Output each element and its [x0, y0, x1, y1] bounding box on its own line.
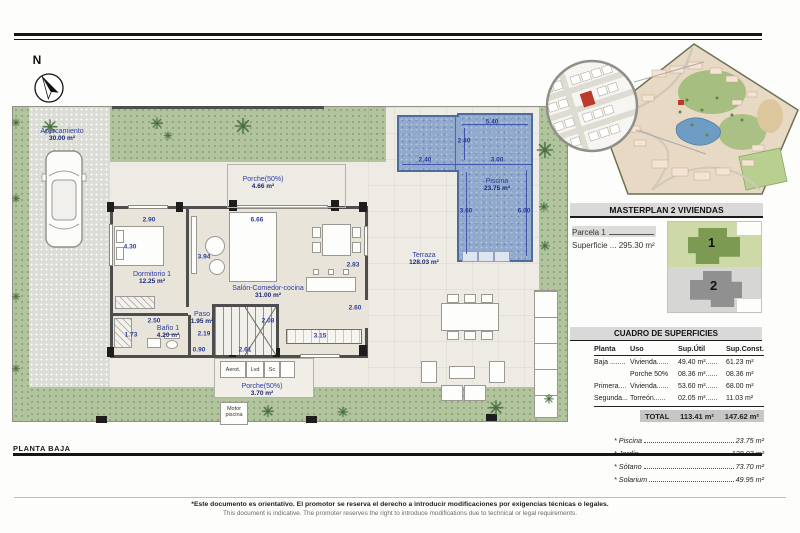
outdoor-armchair [489, 361, 505, 383]
room-label-aparcamiento: Aparcamiento 30.00 m² [40, 128, 83, 142]
dimension-label: 2.50 [148, 318, 161, 325]
chair [312, 227, 321, 238]
table-cell: 61.23 m² [726, 357, 764, 369]
room-label-terraza: Terraza 128.03 m² [409, 252, 439, 266]
terrace-door-opening [364, 300, 369, 328]
fence-post [306, 416, 317, 423]
column [107, 202, 114, 212]
closet-label: Lvd [251, 367, 260, 373]
list-item: * Piscina 23.75 m² [614, 432, 764, 445]
pool-steps [494, 251, 510, 262]
dimension-label: 5.40 [486, 119, 499, 126]
kitchen-counter [306, 277, 356, 292]
room-area: 4.20 m² [157, 332, 179, 339]
dimension-label: 3.00 [491, 157, 504, 164]
lot-notch [737, 222, 761, 235]
palm-tree-icon: ✳ [261, 405, 274, 421]
parcel-detail-callout [542, 54, 712, 162]
table-cell: 49.40 m²...... [678, 357, 726, 369]
parcela-row: Parcela 1 [572, 226, 656, 237]
palm-tree-icon: ✳ [540, 240, 551, 253]
two-dwellings-diagram: 1 2 [667, 221, 762, 313]
column [359, 345, 367, 356]
outdoor-sofa [441, 385, 463, 401]
room-label-piscina: Piscina 23.75 m² [484, 178, 510, 192]
room-name: Aparcamiento [40, 128, 83, 135]
room-area: 30.00 m² [40, 135, 83, 142]
total-sup-const: 147.62 m² [725, 412, 759, 421]
chair [464, 294, 476, 303]
window [109, 224, 114, 266]
parcela-label: Parcela 1 [572, 228, 606, 237]
window [364, 226, 369, 256]
total-sup-util: 113.41 m² [680, 412, 714, 421]
stool [313, 269, 319, 275]
table-cell: 02.05 m²...... [678, 393, 726, 405]
wardrobe [115, 296, 155, 309]
table-cell: Primera.... [594, 381, 630, 393]
surfaces-total-row: TOTAL 113.41 m² 147.62 m² [640, 410, 764, 422]
closet-sc: Sc [264, 361, 280, 378]
col-header-uso: Uso [630, 344, 678, 354]
table-cell: Baja ........ [594, 357, 630, 369]
chair [464, 331, 476, 340]
dimension-label: 3.94 [198, 254, 211, 261]
closet-label: Sc [269, 367, 275, 373]
lot-notch [737, 299, 761, 312]
col-header-sup-const: Sup.Const. [726, 344, 764, 354]
col-header-planta: Planta [594, 344, 630, 354]
palm-tree-icon: ✳ [234, 116, 252, 138]
parcela-underline [609, 234, 654, 235]
wall [186, 209, 189, 307]
entrance-gate [112, 106, 324, 109]
motor-label-line2: piscina [221, 412, 247, 418]
top-rule-thick [14, 33, 762, 36]
extra-label: * Solarium [614, 475, 647, 484]
palm-tree-icon: ✳ [11, 119, 20, 130]
chair [312, 242, 321, 253]
palm-tree-icon: ✳ [150, 117, 163, 133]
room-label-paso: Paso 1.95 m² [191, 311, 213, 325]
masterplan-panel-title: MASTERPLAN 2 VIVIENDAS [570, 203, 763, 218]
list-item: * Jardín 128.03 m² [614, 445, 764, 458]
table-cell: Torreón...... [630, 393, 678, 405]
outdoor-armchair [421, 361, 437, 383]
dimension-label: 2.19 [198, 331, 211, 338]
chair [352, 242, 361, 253]
stool [343, 269, 349, 275]
dimension-line [402, 164, 532, 165]
room-area: 4.66 m² [243, 183, 284, 190]
extra-label: * Piscina [614, 436, 642, 445]
palm-tree-icon: ✳ [11, 365, 20, 376]
fence-post [96, 416, 107, 423]
dimension-label: 2.60 [349, 305, 362, 312]
closet-empty [280, 361, 295, 378]
list-item: * Solarium 49.95 m² [614, 471, 764, 484]
room-label-dormitorio1: Dormitorio 1 12.25 m² [133, 271, 171, 285]
plan-title-rule [13, 453, 762, 456]
room-name: Dormitorio 1 [133, 271, 171, 278]
extras-list: * Piscina 23.75 m² * Jardín 128.03 m² * … [614, 432, 764, 484]
room-name: Terraza [409, 252, 439, 259]
dimension-label: 2.40 [458, 138, 471, 145]
palm-tree-icon: ✳ [11, 195, 20, 206]
disclaimer-es: *Este documento es orientativo. El promo… [0, 501, 800, 508]
disclaimer-en: This document is indicative. The promote… [0, 510, 800, 517]
dimension-label: 4.30 [124, 244, 137, 251]
palm-tree-icon: ✳ [337, 405, 349, 419]
dimension-label: 6.66 [251, 217, 264, 224]
col-header-sup-util: Sup.Útil [678, 344, 726, 354]
wall [112, 313, 188, 316]
dimension-label: 2.40 [419, 157, 432, 164]
plan-title: PLANTA BAJA [13, 444, 71, 453]
table-cell: 08.36 m² [726, 369, 764, 381]
table-cell: 08.36 m²...... [678, 369, 726, 381]
chair [481, 331, 493, 340]
dimension-label: 2.83 [347, 262, 360, 269]
dimension-label: 3.15 [314, 333, 327, 340]
coffee-table [449, 366, 475, 379]
footer-divider [14, 497, 786, 498]
sink [147, 338, 161, 348]
room-label-salon: Salón-Comedor-cocina 31.00 m² [232, 285, 304, 299]
car-top-view [41, 146, 87, 252]
room-area: 1.95 m² [191, 318, 213, 325]
stool [328, 269, 334, 275]
room-area: 3.70 m² [242, 390, 283, 397]
table-cell: Vivienda...... [630, 357, 678, 369]
toilet [166, 340, 178, 349]
palm-tree-icon: ✳ [488, 399, 505, 419]
extra-value: 73.70 m² [736, 462, 764, 471]
table-cell [594, 369, 630, 381]
room-name: Porche(50%) [243, 176, 284, 183]
outdoor-sofa [464, 385, 486, 401]
palm-tree-icon: ✳ [544, 393, 555, 406]
column [107, 347, 114, 357]
pool-steps [462, 251, 478, 262]
unit2-lot: 2 [668, 267, 761, 312]
table-cell: 68.00 m² [726, 381, 764, 393]
palm-tree-icon: ✳ [539, 201, 550, 214]
room-label-porche-top: Porche(50%) 4.66 m² [243, 176, 284, 190]
palm-tree-icon: ✳ [11, 293, 20, 304]
total-label: TOTAL [645, 412, 669, 421]
outdoor-dining-table [441, 303, 499, 331]
closet-label: Aerot. [226, 367, 241, 373]
window [128, 205, 168, 210]
column [359, 202, 367, 212]
pillow [116, 230, 124, 243]
room-area: 31.00 m² [232, 292, 304, 299]
extra-value: 23.75 m² [736, 436, 764, 445]
room-name: Porche(50%) [242, 383, 283, 390]
unit2-number: 2 [710, 278, 717, 293]
closet-lvd: Lvd [246, 361, 264, 378]
room-name: Salón-Comedor-cocina [232, 285, 304, 292]
room-area: 12.25 m² [133, 278, 171, 285]
dotted-leader [649, 481, 733, 482]
dimension-label: 2.08 [262, 318, 275, 325]
dimension-label: 6.00 [518, 208, 531, 215]
round-table [209, 259, 225, 275]
palm-tree-icon: ✳ [163, 132, 172, 143]
room-label-bano1: Baño 1 4.20 m² [157, 325, 179, 339]
dimension-label: 1.73 [125, 332, 138, 339]
dimension-label: 2.61 [239, 347, 252, 354]
closet-aerot: Aerot. [220, 361, 246, 378]
tv-bench [191, 216, 197, 274]
dimension-label: 0.90 [193, 347, 206, 354]
table-cell: Vivienda...... [630, 381, 678, 393]
list-item: * Sótano 73.70 m² [614, 458, 764, 471]
room-area: 128.03 m² [409, 259, 439, 266]
dining-table [322, 224, 351, 256]
unit1-lot: 1 [668, 222, 761, 267]
room-area: 23.75 m² [484, 185, 510, 192]
table-cell: Porche 50% [630, 369, 678, 381]
north-compass: N [24, 50, 70, 114]
brochure-page: N [0, 0, 800, 533]
dimension-label: 3.60 [460, 208, 473, 215]
surfaces-panel-title: CUADRO DE SUPERFICIES [570, 327, 762, 341]
surfaces-table-header: Planta Uso Sup.Útil Sup.Const. [594, 344, 764, 356]
table-cell: 53.60 m²...... [678, 381, 726, 393]
pool-motor-box: Motor piscina [220, 402, 248, 425]
unit1-number: 1 [708, 235, 715, 250]
chair [447, 331, 459, 340]
superficie-label: Superficie ... 295.30 m² [572, 241, 655, 250]
dimension-label: 2.90 [143, 217, 156, 224]
room-name: Piscina [484, 178, 510, 185]
compass-n-label: N [33, 53, 42, 67]
dotted-leader [644, 468, 734, 469]
dotted-leader [644, 442, 734, 443]
surfaces-table: Planta Uso Sup.Útil Sup.Const. Baja ....… [594, 344, 764, 407]
extra-value: 49.95 m² [736, 475, 764, 484]
column [176, 202, 183, 212]
room-name: Baño 1 [157, 325, 179, 332]
extra-label: * Sótano [614, 462, 642, 471]
chair [481, 294, 493, 303]
chair [447, 294, 459, 303]
table-cell: 11.03 m² [726, 393, 764, 405]
table-cell: Segunda... [594, 393, 630, 405]
chair [352, 227, 361, 238]
room-label-porche-bottom: Porche(50%) 3.70 m² [242, 383, 283, 397]
pool-steps [478, 251, 494, 262]
room-name: Paso [191, 311, 213, 318]
surfaces-table-body: Baja ........ Vivienda...... 49.40 m²...… [594, 356, 764, 407]
